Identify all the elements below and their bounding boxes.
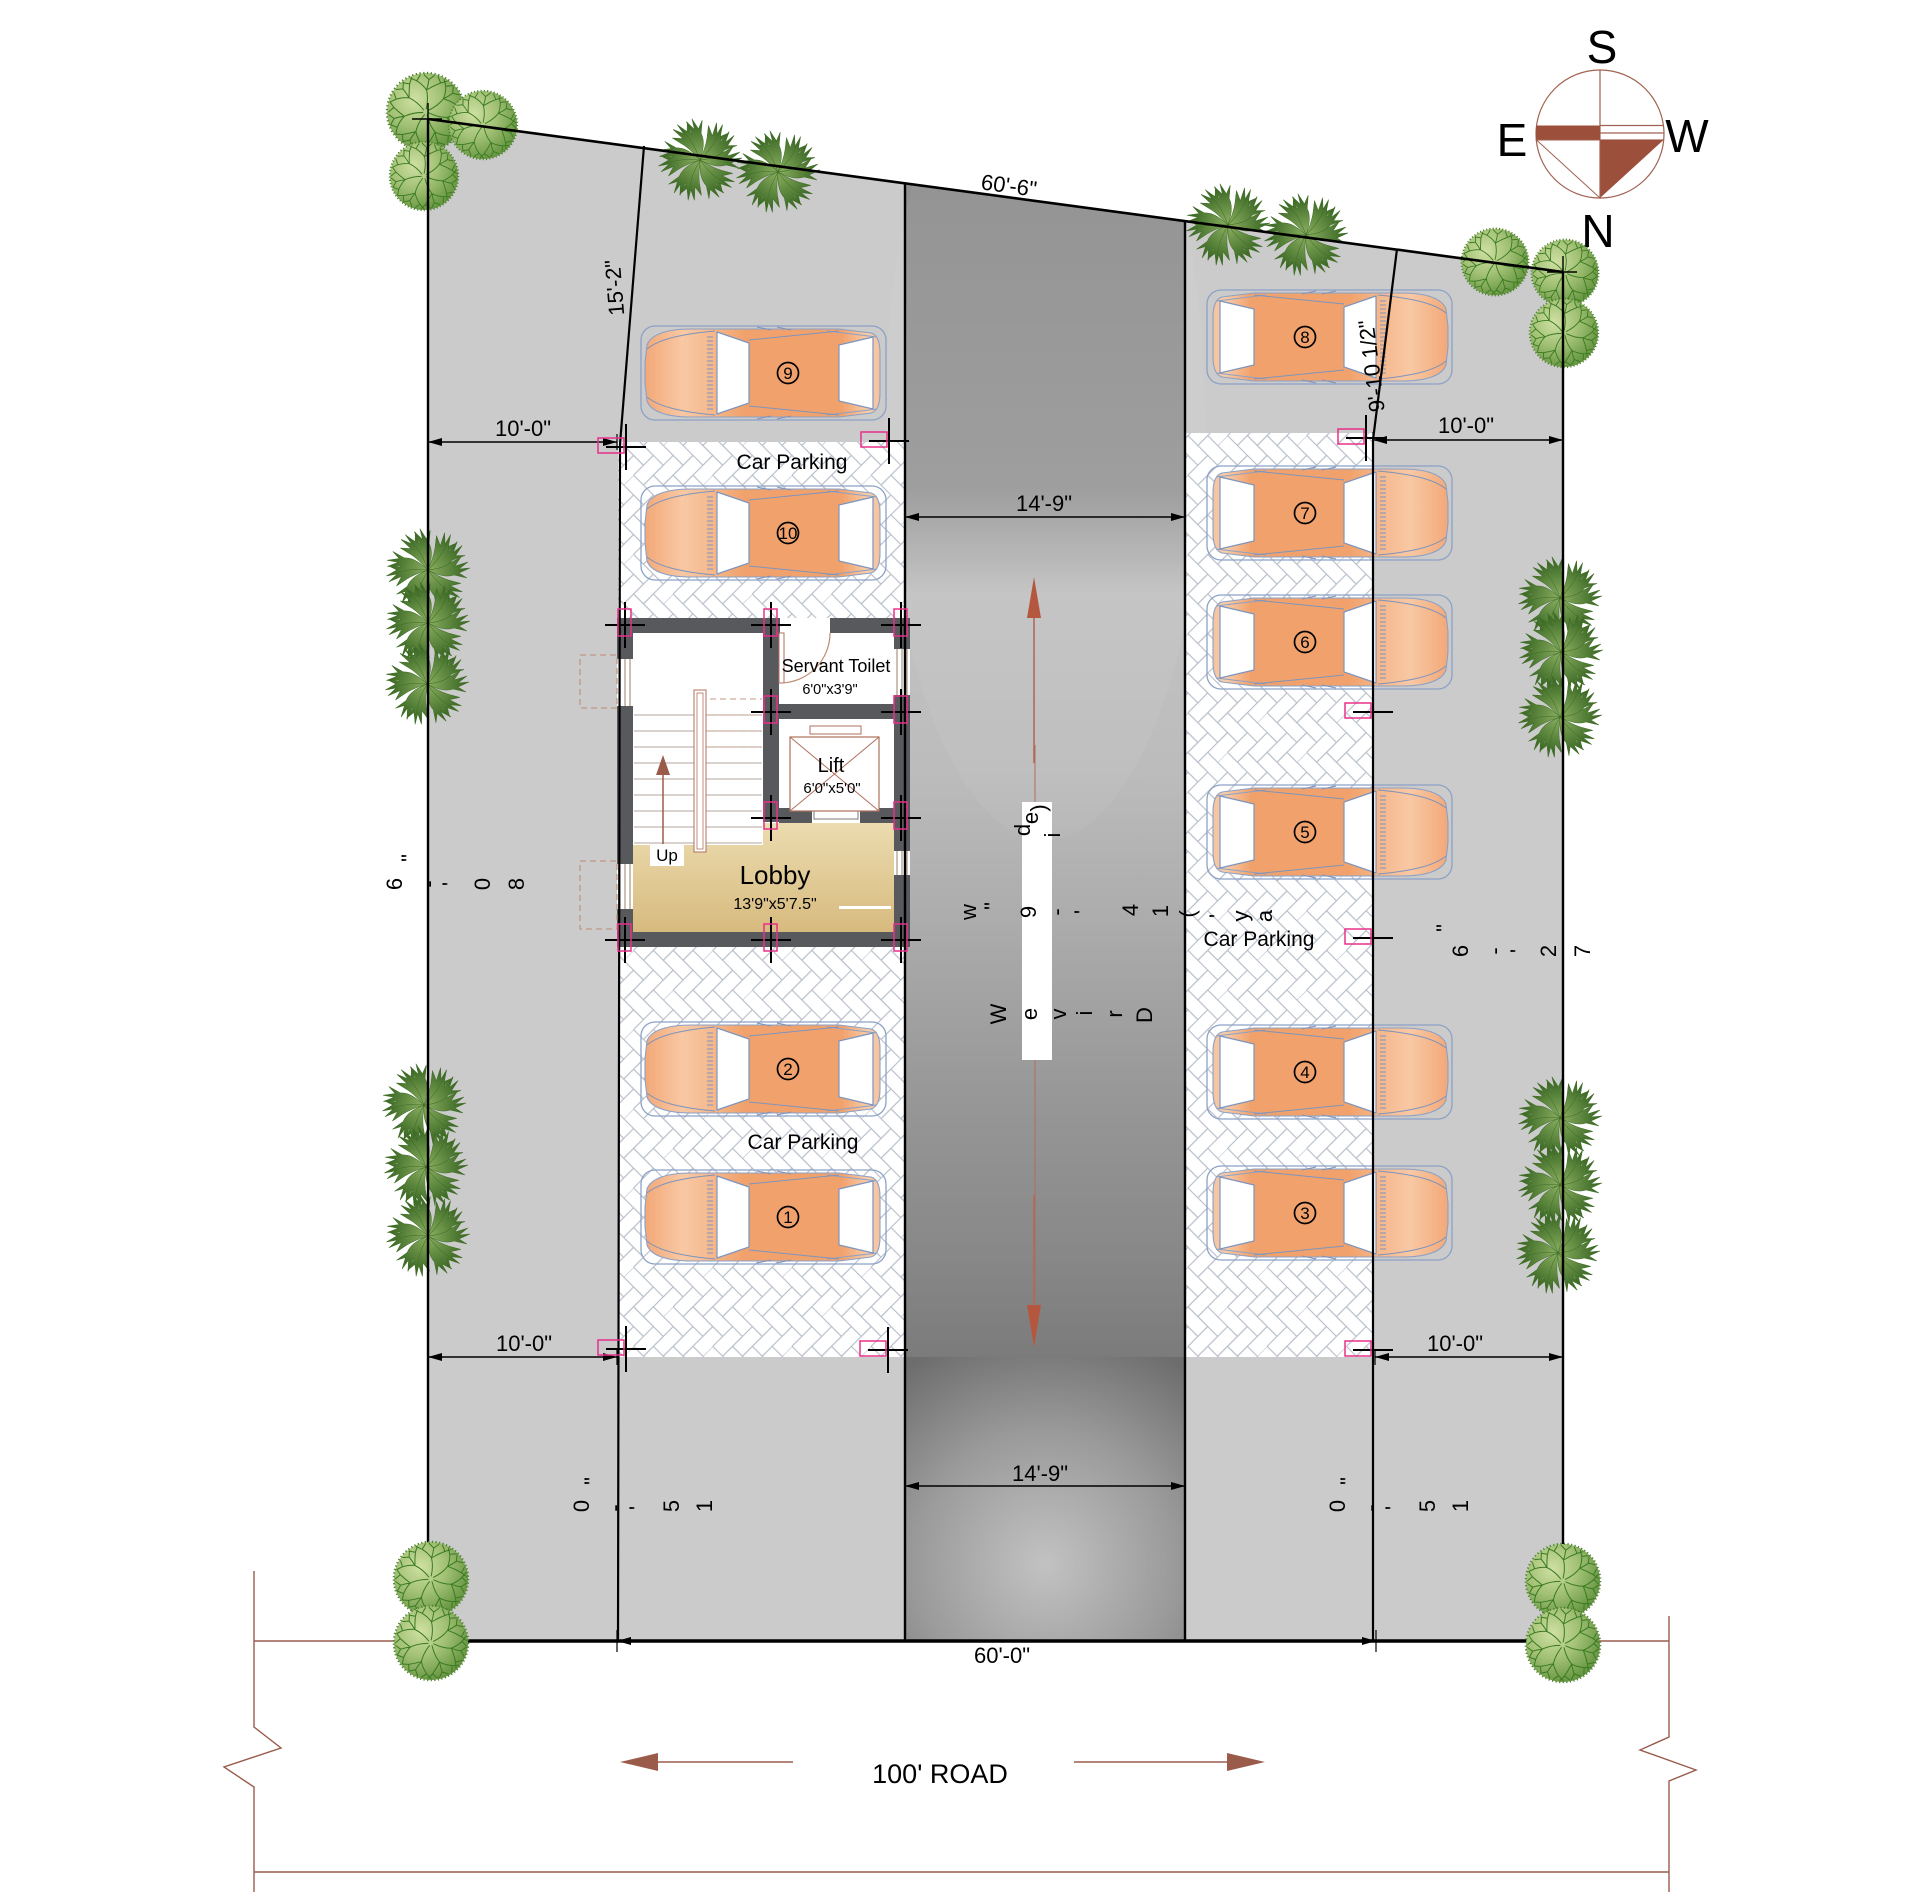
svg-text:i: i: [1040, 833, 1065, 838]
svg-text:14'-9": 14'-9": [1016, 491, 1072, 516]
svg-text:6'0"x3'9": 6'0"x3'9": [802, 682, 857, 698]
svg-text:v: v: [1046, 1009, 1071, 1020]
svg-text:10'-0": 10'-0": [1427, 1331, 1483, 1356]
svg-text:2: 2: [783, 1060, 792, 1079]
svg-text:e: e: [1018, 812, 1043, 824]
svg-text:i: i: [1072, 1011, 1097, 1016]
svg-text:Car Parking: Car Parking: [737, 451, 848, 474]
svg-text:a: a: [1252, 909, 1277, 922]
svg-text:60'-0": 60'-0": [974, 1643, 1030, 1668]
svg-text:4: 4: [1118, 904, 1143, 916]
svg-text:14'-9": 14'-9": [1012, 1461, 1068, 1486]
svg-text:100' ROAD: 100' ROAD: [872, 1759, 1008, 1789]
svg-text:W: W: [1665, 110, 1709, 162]
svg-text:10: 10: [779, 524, 798, 543]
svg-text:e: e: [1017, 1008, 1042, 1020]
svg-text:': ': [1070, 910, 1095, 914]
svg-text:6: 6: [1300, 633, 1309, 652]
svg-text:": ": [397, 854, 422, 862]
svg-text:1: 1: [1448, 1500, 1473, 1512]
svg-text:N: N: [1581, 205, 1614, 257]
svg-text:9: 9: [783, 364, 792, 383]
svg-text:Up: Up: [656, 846, 678, 865]
svg-text:4: 4: [1300, 1063, 1309, 1082]
svg-text:13'9"x5'7.5": 13'9"x5'7.5": [733, 896, 816, 913]
svg-text:-: -: [1358, 1504, 1383, 1511]
svg-text:': ': [1506, 949, 1531, 953]
svg-text:): ): [1026, 804, 1051, 811]
svg-text:10'-0": 10'-0": [495, 416, 551, 441]
svg-text:10'-0": 10'-0": [496, 1331, 552, 1356]
svg-text:-: -: [1482, 947, 1507, 954]
svg-text:5: 5: [1415, 1500, 1440, 1512]
svg-text:Car Parking: Car Parking: [1204, 928, 1315, 951]
svg-text:E: E: [1497, 114, 1528, 166]
svg-text:': ': [1381, 1506, 1406, 1510]
svg-text:r: r: [1102, 1010, 1127, 1017]
svg-text:": ": [1432, 924, 1457, 932]
svg-text:": ": [580, 1477, 605, 1485]
svg-text:6: 6: [1448, 945, 1473, 957]
svg-text:3: 3: [1300, 1204, 1309, 1223]
svg-text:Lift: Lift: [818, 755, 845, 777]
svg-text:9: 9: [1016, 906, 1041, 918]
svg-text:8: 8: [504, 878, 529, 890]
svg-text:d: d: [1010, 824, 1035, 836]
svg-text:1: 1: [783, 1208, 792, 1227]
svg-text:7: 7: [1570, 945, 1595, 957]
svg-text:5: 5: [659, 1500, 684, 1512]
svg-text:5: 5: [1300, 823, 1309, 842]
svg-text:-: -: [602, 1504, 627, 1511]
svg-text:D: D: [1132, 1007, 1157, 1023]
svg-text:2: 2: [1536, 945, 1561, 957]
svg-text:(: (: [1175, 910, 1200, 918]
svg-text:Servant Toilet: Servant Toilet: [782, 656, 891, 676]
svg-text:Lobby: Lobby: [740, 860, 811, 890]
svg-text:-: -: [1044, 908, 1069, 915]
svg-text:15'-2": 15'-2": [600, 259, 629, 317]
svg-text:S: S: [1587, 21, 1618, 73]
svg-text:8: 8: [1300, 328, 1309, 347]
svg-text:6'0"x5'0": 6'0"x5'0": [803, 780, 860, 797]
svg-text:y: y: [1228, 911, 1253, 922]
svg-text:': ': [1205, 914, 1230, 918]
svg-text:W: W: [986, 1003, 1011, 1024]
svg-text:0: 0: [569, 1500, 594, 1512]
svg-text:': ': [625, 1506, 650, 1510]
svg-text:10'-0": 10'-0": [1438, 413, 1494, 438]
svg-text:': ': [438, 882, 463, 886]
svg-text:6: 6: [382, 878, 407, 890]
svg-text:0: 0: [1325, 1500, 1350, 1512]
svg-text:": ": [980, 902, 1005, 910]
svg-text:1: 1: [1148, 905, 1173, 917]
svg-text:0: 0: [470, 878, 495, 890]
svg-text:w: w: [956, 904, 981, 921]
svg-text:Car Parking: Car Parking: [748, 1131, 859, 1154]
svg-text:1: 1: [692, 1500, 717, 1512]
svg-text:": ": [1336, 1477, 1361, 1485]
svg-text:7: 7: [1300, 504, 1309, 523]
